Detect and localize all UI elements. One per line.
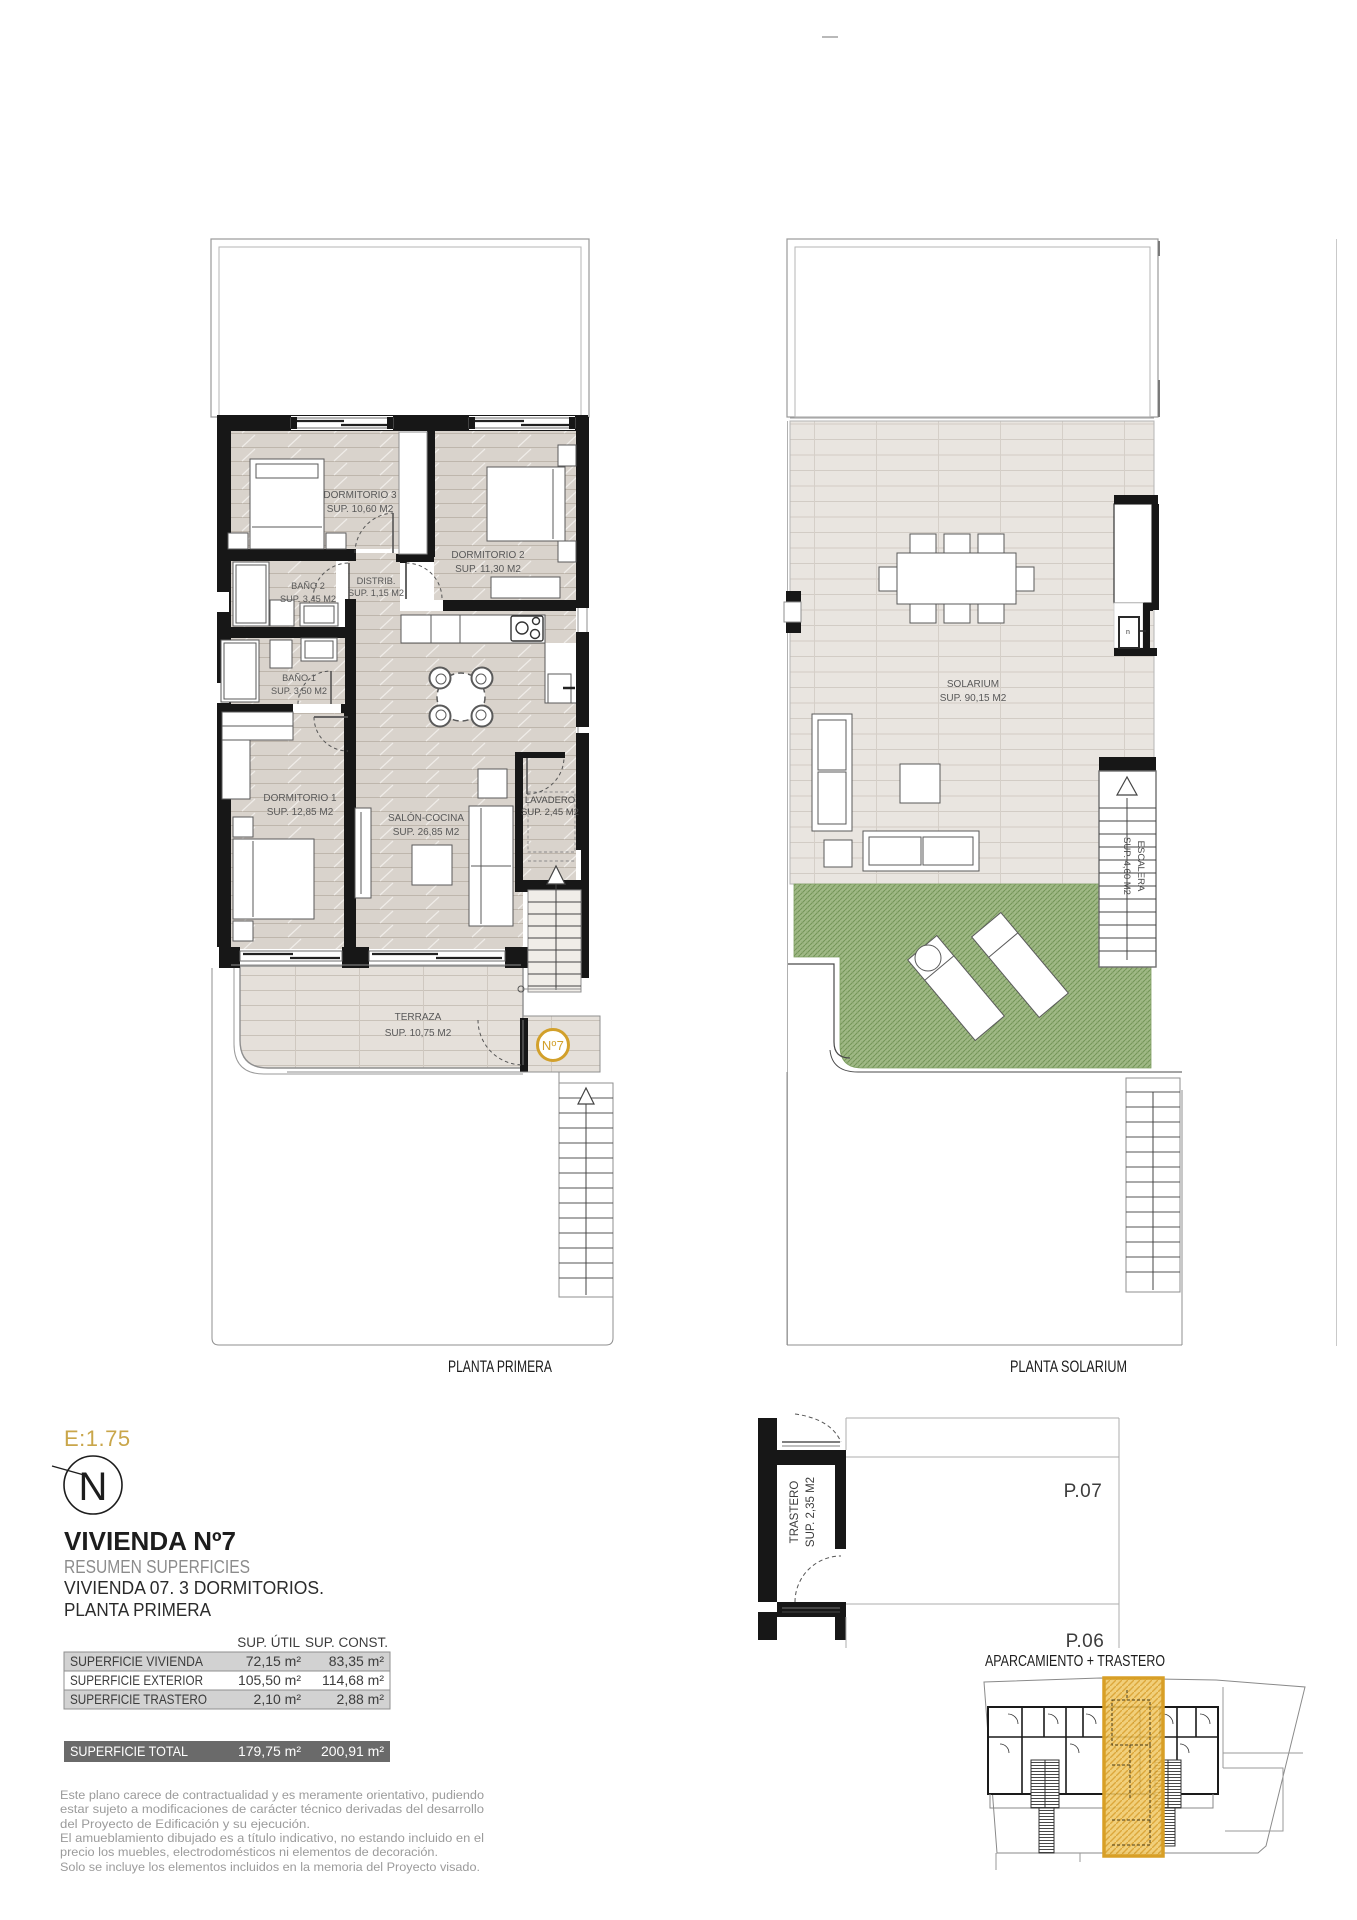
- svg-text:LAVADERO: LAVADERO: [525, 795, 575, 806]
- svg-text:SUP. 2,45 M2: SUP. 2,45 M2: [521, 807, 579, 818]
- svg-text:BAÑO 2: BAÑO 2: [291, 581, 325, 591]
- svg-text:179,75 m²: 179,75 m²: [238, 1743, 301, 1759]
- svg-text:SUP. 4,60 M2: SUP. 4,60 M2: [1121, 837, 1132, 895]
- svg-text:105,50 m²: 105,50 m²: [238, 1672, 301, 1688]
- svg-text:estar sujeto a modificaciones: estar sujeto a modificaciones de carácte…: [60, 1802, 484, 1816]
- svg-text:SOLARIUM: SOLARIUM: [947, 679, 999, 690]
- svg-text:P.06: P.06: [1066, 1631, 1105, 1652]
- svg-text:DISTRIB.: DISTRIB.: [357, 576, 396, 586]
- svg-text:APARCAMIENTO + TRASTERO: APARCAMIENTO + TRASTERO: [985, 1653, 1165, 1670]
- svg-text:2,88 m²: 2,88 m²: [337, 1691, 385, 1707]
- svg-text:Nº7: Nº7: [542, 1038, 564, 1053]
- svg-text:SUPERFICIE VIVIENDA: SUPERFICIE VIVIENDA: [70, 1653, 204, 1669]
- svg-text:SUP. CONST.: SUP. CONST.: [305, 1635, 388, 1650]
- svg-text:PLANTA SOLARIUM: PLANTA SOLARIUM: [1010, 1357, 1127, 1376]
- svg-text:VIVIENDA 07. 3 DORMITORIOS.: VIVIENDA 07. 3 DORMITORIOS.: [64, 1578, 324, 1598]
- svg-text:DORMITORIO 1: DORMITORIO 1: [263, 793, 337, 804]
- svg-text:N: N: [79, 1465, 108, 1509]
- svg-text:SUP. 26,85 M2: SUP. 26,85 M2: [393, 827, 460, 838]
- svg-text:72,15 m²: 72,15 m²: [246, 1653, 302, 1669]
- svg-text:RESUMEN SUPERFICIES: RESUMEN SUPERFICIES: [64, 1557, 250, 1577]
- svg-text:Solo se incluye los elementos: Solo se incluye los elementos incluidos …: [60, 1860, 480, 1874]
- svg-text:SUP. 12,85 M2: SUP. 12,85 M2: [267, 807, 334, 818]
- svg-text:83,35 m²: 83,35 m²: [329, 1653, 385, 1669]
- svg-text:TRASTERO: TRASTERO: [789, 1481, 801, 1544]
- svg-text:DORMITORIO 2: DORMITORIO 2: [451, 550, 525, 561]
- svg-text:SUP. 3,50 M2: SUP. 3,50 M2: [271, 686, 327, 696]
- svg-text:SUP. 2,35 M2: SUP. 2,35 M2: [805, 1477, 817, 1547]
- svg-text:Este plano carece de contractu: Este plano carece de contractualidad y e…: [60, 1788, 484, 1802]
- svg-text:SUP. ÚTIL: SUP. ÚTIL: [237, 1635, 300, 1650]
- svg-text:VIVIENDA Nº7: VIVIENDA Nº7: [64, 1526, 236, 1556]
- svg-text:E:1.75: E:1.75: [64, 1426, 131, 1451]
- svg-text:2,10 m²: 2,10 m²: [254, 1691, 302, 1707]
- svg-text:TERRAZA: TERRAZA: [395, 1012, 442, 1023]
- svg-text:ESCALERA: ESCALERA: [1135, 841, 1146, 892]
- svg-text:n: n: [1126, 629, 1130, 636]
- svg-text:PLANTA PRIMERA: PLANTA PRIMERA: [448, 1357, 552, 1376]
- svg-text:precio los muebles, electrodom: precio los muebles, electrodomésticos ni…: [60, 1845, 438, 1859]
- svg-text:SUPERFICIE TOTAL: SUPERFICIE TOTAL: [70, 1743, 188, 1759]
- svg-text:SUPERFICIE EXTERIOR: SUPERFICIE EXTERIOR: [70, 1672, 203, 1688]
- svg-text:SUP. 10,75 M2: SUP. 10,75 M2: [385, 1028, 452, 1039]
- svg-text:PLANTA PRIMERA: PLANTA PRIMERA: [64, 1600, 211, 1620]
- svg-text:SALÓN-COCINA: SALÓN-COCINA: [388, 811, 464, 824]
- svg-text:SUP. 3,45 M2: SUP. 3,45 M2: [280, 594, 336, 604]
- svg-text:El amueblamiento dibujado es a: El amueblamiento dibujado es a título in…: [60, 1831, 484, 1845]
- svg-text:SUP. 10,60 M2: SUP. 10,60 M2: [327, 504, 394, 515]
- svg-text:SUP. 1,15 M2: SUP. 1,15 M2: [348, 588, 404, 598]
- svg-text:SUP. 90,15 M2: SUP. 90,15 M2: [940, 693, 1007, 704]
- svg-text:200,91 m²: 200,91 m²: [321, 1743, 384, 1759]
- svg-text:DORMITORIO 3: DORMITORIO 3: [323, 490, 397, 501]
- svg-text:BAÑO 1: BAÑO 1: [282, 673, 316, 683]
- svg-text:del Proyecto de Edificación y: del Proyecto de Edificación y su ejecuci…: [60, 1817, 310, 1831]
- svg-text:SUPERFICIE TRASTERO: SUPERFICIE TRASTERO: [70, 1691, 207, 1707]
- svg-text:P.07: P.07: [1064, 1481, 1103, 1502]
- svg-text:SUP. 11,30 M2: SUP. 11,30 M2: [455, 564, 521, 575]
- svg-text:114,68 m²: 114,68 m²: [322, 1672, 384, 1688]
